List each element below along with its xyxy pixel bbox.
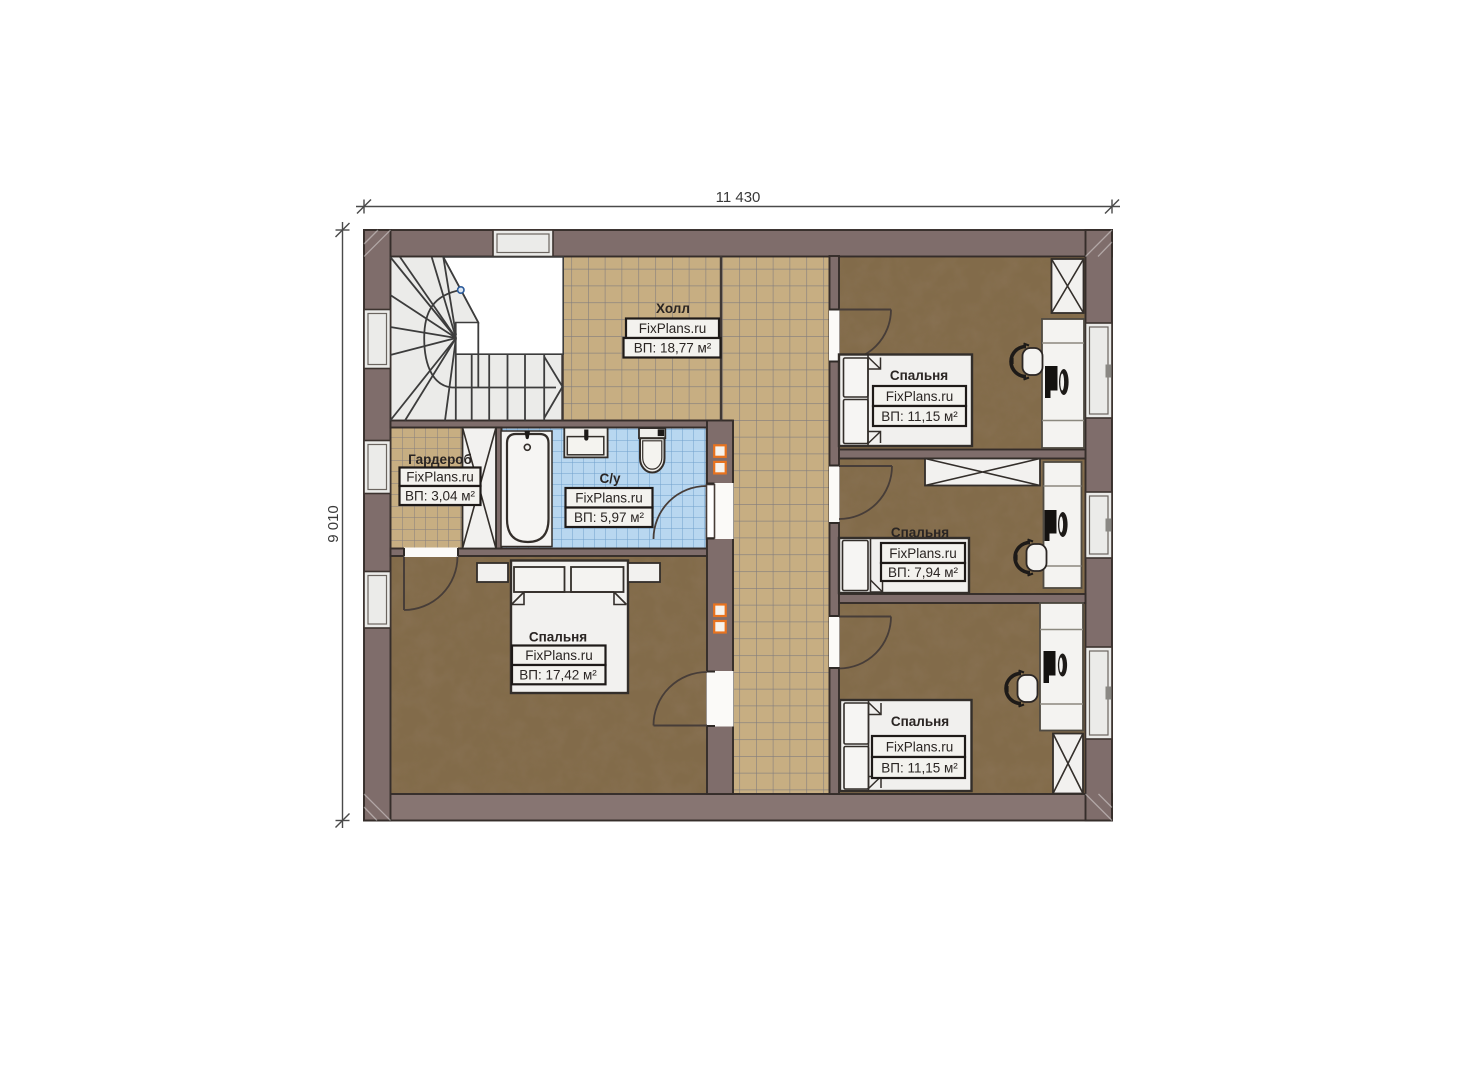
svg-text:11 430: 11 430 [716, 189, 761, 206]
svg-text:Гардероб: Гардероб [408, 452, 472, 467]
svg-text:ВП: 3,04 м²: ВП: 3,04 м² [405, 489, 476, 504]
svg-text:FixPlans.ru: FixPlans.ru [575, 491, 643, 506]
svg-text:FixPlans.ru: FixPlans.ru [406, 470, 474, 485]
svg-text:FixPlans.ru: FixPlans.ru [889, 546, 957, 561]
svg-text:Спальня: Спальня [529, 630, 587, 645]
svg-text:ВП: 17,42 м²: ВП: 17,42 м² [519, 668, 597, 683]
svg-text:С/у: С/у [599, 471, 621, 486]
svg-text:ВП: 11,15 м²: ВП: 11,15 м² [881, 761, 958, 776]
svg-text:Спальня: Спальня [891, 525, 949, 540]
svg-text:Спальня: Спальня [890, 368, 948, 383]
svg-text:ВП: 18,77 м²: ВП: 18,77 м² [634, 341, 712, 356]
svg-text:Спальня: Спальня [891, 714, 949, 729]
svg-text:FixPlans.ru: FixPlans.ru [525, 648, 593, 663]
svg-text:FixPlans.ru: FixPlans.ru [639, 321, 707, 336]
svg-text:ВП: 5,97 м²: ВП: 5,97 м² [574, 510, 645, 525]
svg-text:ВП: 11,15 м²: ВП: 11,15 м² [881, 409, 958, 424]
svg-text:FixPlans.ru: FixPlans.ru [886, 740, 954, 755]
svg-text:Холл: Холл [656, 301, 690, 316]
svg-text:ВП: 7,94 м²: ВП: 7,94 м² [888, 565, 959, 580]
svg-text:FixPlans.ru: FixPlans.ru [886, 389, 954, 404]
svg-text:9 010: 9 010 [325, 505, 342, 543]
